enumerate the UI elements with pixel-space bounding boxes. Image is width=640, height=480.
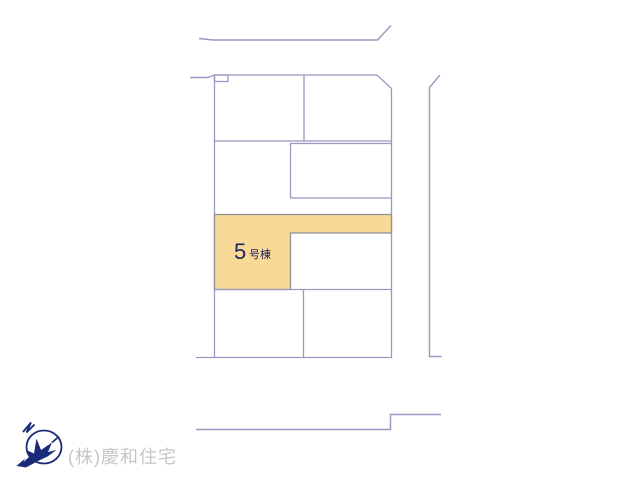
lot-5-label-suffix: 号棟: [249, 247, 271, 261]
bottom-road-edge-line: [196, 415, 441, 430]
company-name-watermark: (株)慶和住宅: [68, 443, 177, 469]
site-plan-canvas: 5 号棟 (株)慶和住宅: [0, 0, 640, 480]
top-left-road-stub-line: [190, 75, 215, 78]
company-bird-logo-icon: [10, 419, 64, 475]
lot-5-label-number: 5: [234, 239, 246, 264]
right-road-edge-line: [430, 75, 442, 357]
corner-notch: [215, 75, 229, 82]
top-road-edge-line: [199, 26, 391, 41]
footer: (株)慶和住宅: [10, 419, 177, 475]
site-plan-drawing: 5 号棟: [0, 0, 640, 480]
row2-inset-lot-outline: [291, 144, 392, 199]
